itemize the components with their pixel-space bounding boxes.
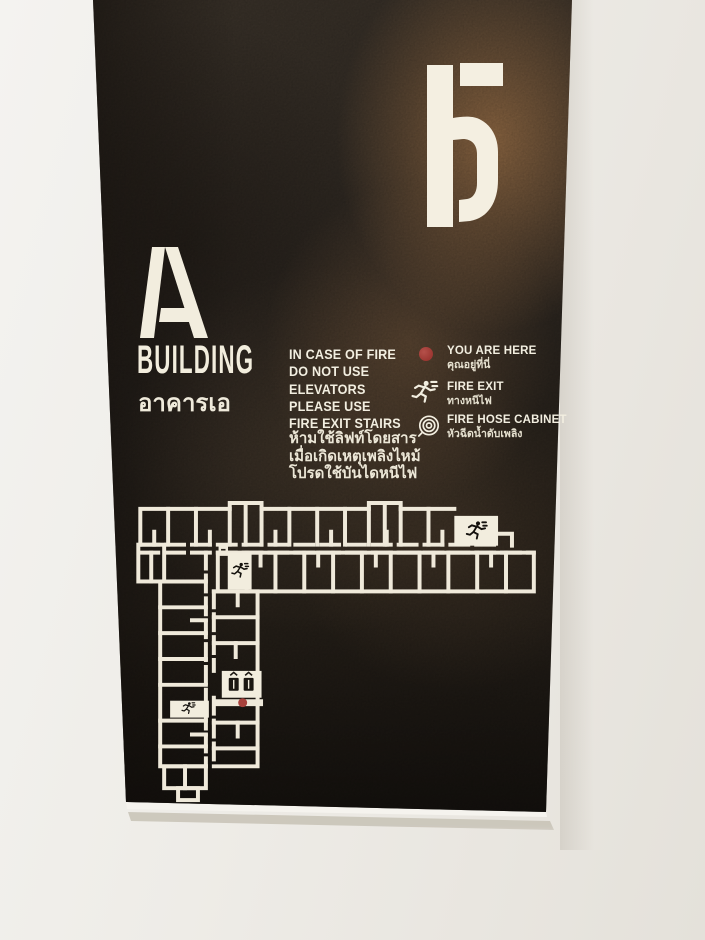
- legend-label: FIRE HOSE CABINET: [447, 414, 567, 426]
- running-man-icon: [410, 379, 440, 403]
- fire-notice-thai: ห้ามใช้ลิฟท์โดยสาร เมื่อเกิดเหตุเพลิงไหม…: [289, 430, 421, 483]
- photo-of-building-fire-evacuation-sign: { "sign": { "floor_number": "5", "buildi…: [0, 0, 705, 940]
- notice-line: IN CASE OF FIRE: [289, 346, 401, 363]
- notice-line: DO NOT USE: [289, 363, 401, 380]
- stencil-letter-a: [134, 241, 214, 343]
- building-word: BUILDING: [137, 340, 254, 380]
- fire-exit-box: [454, 516, 498, 546]
- you-are-here-dot-icon: [419, 347, 433, 361]
- plan-you-are-here-marker: [238, 698, 247, 707]
- building-word-thai: อาคารเอ: [138, 383, 231, 422]
- floor-number-stencil: 5: [418, 52, 508, 232]
- plan-walls: [138, 503, 534, 800]
- floor-plan-map: [133, 496, 563, 814]
- notice-line-th: ห้ามใช้ลิฟท์โดยสาร: [289, 430, 421, 448]
- legend-label-thai: ทางหนีไฟ: [447, 395, 504, 407]
- fire-exit-box: [228, 553, 252, 590]
- legend-label-thai: หัวฉีดน้ำดับเพลิง: [447, 428, 567, 440]
- legend-label: YOU ARE HERE: [447, 345, 537, 357]
- legend-item-fire-exit: FIRE EXIT ทางหนีไฟ: [447, 381, 504, 407]
- fire-notice-english: IN CASE OF FIRE DO NOT USE ELEVATORS PLE…: [289, 346, 401, 432]
- sign-artwork: 5 A BUILDING อาคารเอ IN CASE OF FIRE DO …: [0, 0, 705, 940]
- notice-line-th: โปรดใช้บันไดหนีไฟ: [289, 465, 421, 483]
- plan-elevator-lobby: [222, 671, 262, 698]
- hose-coil-icon: [416, 413, 442, 439]
- building-letter-stencil: A: [134, 241, 214, 343]
- legend-item-you-are-here: YOU ARE HERE คุณอยู่ที่นี่: [447, 345, 537, 371]
- notice-line: PLEASE USE: [289, 398, 401, 415]
- legend-label-thai: คุณอยู่ที่นี่: [447, 359, 537, 371]
- legend-item-fire-hose-cabinet: FIRE HOSE CABINET หัวฉีดน้ำดับเพลิง: [447, 414, 567, 440]
- legend-label: FIRE EXIT: [447, 381, 504, 393]
- notice-line: ELEVATORS: [289, 381, 401, 398]
- notice-line-th: เมื่อเกิดเหตุเพลิงไหม้: [289, 448, 421, 466]
- stencil-digit-5: [418, 52, 508, 232]
